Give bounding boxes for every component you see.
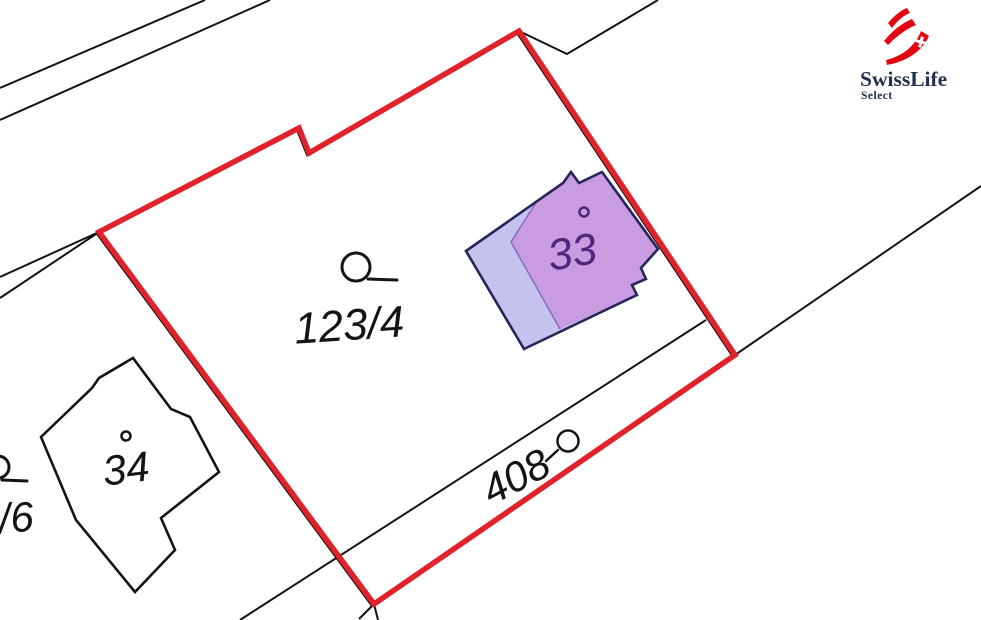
boundary-marker-tail-partial bbox=[2, 480, 27, 481]
parcel-label-partial: /6 bbox=[0, 493, 36, 543]
boundary-circle-marker-partial bbox=[0, 456, 9, 478]
parcel-label-main: 123/4 bbox=[292, 297, 405, 354]
logo-product-text: Select bbox=[861, 90, 893, 102]
building-34-label: 34 bbox=[100, 442, 152, 494]
logo-brand-text: SwissLife bbox=[860, 67, 947, 91]
building-33-label: 33 bbox=[544, 224, 601, 281]
cadastral-map-view: 34 33 123/4 408 /6 bbox=[0, 0, 981, 620]
boundary-circle-marker-main bbox=[342, 253, 370, 281]
boundary-marker-tail-main bbox=[368, 279, 397, 280]
boundary-circle-marker-road bbox=[558, 431, 579, 452]
cadastral-map: 34 33 123/4 408 /6 bbox=[0, 0, 981, 620]
